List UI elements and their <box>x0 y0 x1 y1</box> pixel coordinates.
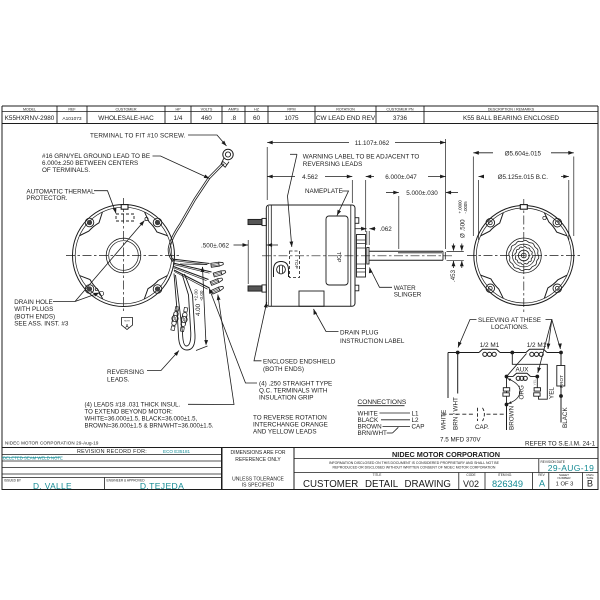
svg-text:WITH PLUGS: WITH PLUGS <box>14 306 53 313</box>
svg-text:DRAIN HOLE: DRAIN HOLE <box>14 299 53 306</box>
svg-text:Ø5.125±.015 B.C.: Ø5.125±.015 B.C. <box>498 174 549 181</box>
svg-text:INSULATION GRIP: INSULATION GRIP <box>259 395 313 402</box>
svg-text:D. VALLE: D. VALLE <box>33 481 72 491</box>
svg-text:V02: V02 <box>463 479 479 489</box>
svg-text:ECO E35181: ECO E35181 <box>163 449 191 454</box>
svg-text:MODEL: MODEL <box>23 107 36 111</box>
svg-text:INTERCHANGE ORANGE: INTERCHANGE ORANGE <box>253 422 328 429</box>
svg-text:-0.00: -0.00 <box>199 290 204 301</box>
svg-text:(4) LEADS #18 .031 THICK INSUL: (4) LEADS #18 .031 THICK INSUL. <box>85 402 181 409</box>
svg-text:(BOTH ENDS): (BOTH ENDS) <box>263 366 304 373</box>
svg-text:WHOLESALE-HAC: WHOLESALE-HAC <box>98 115 154 122</box>
svg-text:VOLTS: VOLTS <box>201 107 213 111</box>
svg-text:+2.00: +2.00 <box>194 289 199 301</box>
svg-text:LEADS.: LEADS. <box>107 377 130 384</box>
svg-text:7.5 MFD 370V: 7.5 MFD 370V <box>440 437 481 444</box>
svg-text:A101073: A101073 <box>62 116 82 122</box>
svg-text:CUSTOMER: CUSTOMER <box>115 107 136 111</box>
svg-text:TOP: TOP <box>335 252 341 263</box>
svg-text:CAP: CAP <box>412 424 425 431</box>
svg-text:NAMEPLATE: NAMEPLATE <box>305 188 343 195</box>
svg-text:4.562: 4.562 <box>302 174 318 181</box>
svg-text:REPRODUCED OR DISCLOSED WITHOU: REPRODUCED OR DISCLOSED WITHOUT WRITTEN … <box>333 465 496 469</box>
svg-text:NIDEC MOTOR CORPORATION: NIDEC MOTOR CORPORATION <box>392 450 500 459</box>
svg-text:WHITE: WHITE <box>441 410 448 430</box>
svg-text:NOTE: NOTE <box>124 321 130 323</box>
svg-text:Ø .500: Ø .500 <box>460 219 467 238</box>
svg-text:(4) .250 STRAIGHT TYPE: (4) .250 STRAIGHT TYPE <box>259 381 332 388</box>
svg-text:AMPS: AMPS <box>228 107 239 111</box>
svg-text:REF: REF <box>68 107 76 111</box>
svg-text:CW LEAD END REV: CW LEAD END REV <box>316 115 376 122</box>
svg-text:CUSTOMER DETAIL DRAWING: CUSTOMER DETAIL DRAWING <box>303 479 451 490</box>
svg-text:#16 GRN/YEL GROUND LEAD TO BE: #16 GRN/YEL GROUND LEAD TO BE <box>42 153 150 160</box>
svg-text:DRAIN PLUG: DRAIN PLUG <box>340 330 379 337</box>
svg-text:ITEM NO.: ITEM NO. <box>498 473 512 477</box>
svg-text:(BOTH ENDS): (BOTH ENDS) <box>14 313 55 320</box>
svg-text:WARNING LABEL TO BE ADJACENT T: WARNING LABEL TO BE ADJACENT TO <box>303 154 420 161</box>
svg-text:TO REVERSE ROTATION: TO REVERSE ROTATION <box>253 415 327 422</box>
svg-text:1/2 M1: 1/2 M1 <box>480 342 500 349</box>
svg-text:6.000±.250 BETWEEN CENTERS: 6.000±.250 BETWEEN CENTERS <box>42 160 138 167</box>
svg-text:REVERSING: REVERSING <box>107 369 144 376</box>
svg-text:K55 BALL BEARING ENCLOSED: K55 BALL BEARING ENCLOSED <box>463 115 559 122</box>
svg-text:ORG: ORG <box>519 385 526 399</box>
svg-text:4.00: 4.00 <box>195 303 202 316</box>
svg-text:IS SPECIFIED: IS SPECIFIED <box>242 482 275 488</box>
svg-text:1 OF 3: 1 OF 3 <box>556 482 574 488</box>
svg-text:CODE: CODE <box>466 473 475 477</box>
svg-text:.500±.062: .500±.062 <box>201 243 229 250</box>
svg-text:6.000±.047: 6.000±.047 <box>385 174 417 181</box>
svg-text:YEL: YEL <box>533 379 537 386</box>
svg-text:SLEEVING AT THESE: SLEEVING AT THESE <box>478 317 541 324</box>
svg-text:Ø5.604±.015: Ø5.604±.015 <box>505 150 542 157</box>
svg-text:1/2 M1: 1/2 M1 <box>527 342 547 349</box>
svg-text:Q.C. TERMINALS WITH: Q.C. TERMINALS WITH <box>259 388 328 395</box>
svg-text:.8: .8 <box>231 115 237 122</box>
svg-text:LOCATIONS.: LOCATIONS. <box>491 324 529 331</box>
svg-text:TOP: TOP <box>294 259 299 268</box>
svg-text:PROTECTOR.: PROTECTOR. <box>26 195 67 202</box>
svg-text:TO EXTEND BEYOND MOTOR:: TO EXTEND BEYOND MOTOR: <box>85 409 173 416</box>
svg-text:5.000±.030: 5.000±.030 <box>406 190 438 197</box>
svg-text:BLACK: BLACK <box>562 407 569 428</box>
svg-text:TITLE: TITLE <box>373 473 382 477</box>
svg-text:REFER TO S.E.I.M. 24-1: REFER TO S.E.I.M. 24-1 <box>525 441 596 448</box>
svg-text:YEL: YEL <box>548 387 555 399</box>
svg-text:-.0005: -.0005 <box>463 201 468 214</box>
svg-text:D.TEJEDA: D.TEJEDA <box>140 481 184 491</box>
svg-text:HP: HP <box>175 107 181 111</box>
svg-text:REFERENCE ONLY: REFERENCE ONLY <box>235 457 281 463</box>
svg-text:DIMENSIONS ARE FOR: DIMENSIONS ARE FOR <box>230 450 285 456</box>
svg-text:PROT: PROT <box>559 375 564 388</box>
svg-text:CAP.: CAP. <box>475 424 489 431</box>
svg-text:11.107±.062: 11.107±.062 <box>355 140 390 147</box>
svg-text:ENCLOSED ENDSHIELD: ENCLOSED ENDSHIELD <box>263 359 336 366</box>
svg-text:ISSUED BY: ISSUED BY <box>4 479 22 483</box>
svg-text:.062: .062 <box>380 226 393 233</box>
svg-text:REVERSING LEADS: REVERSING LEADS <box>303 161 363 168</box>
svg-text:REVISION RECORD FOR:: REVISION RECORD FOR: <box>77 449 147 455</box>
svg-text:DESCRIPTION / REMARKS: DESCRIPTION / REMARKS <box>488 107 535 111</box>
svg-text:SEE ASS. INST. #3: SEE ASS. INST. #3 <box>14 321 69 328</box>
svg-text:A: A <box>539 479 545 489</box>
svg-text:WHITE=36.000±1.5, BLACK=36.000: WHITE=36.000±1.5, BLACK=36.000±1.5, <box>85 416 198 423</box>
svg-text:TERMINAL TO FIT #10 SCREW.: TERMINAL TO FIT #10 SCREW. <box>90 133 186 140</box>
svg-text:826349: 826349 <box>492 479 523 489</box>
svg-text:29-AUG-19: 29-AUG-19 <box>548 463 595 473</box>
svg-text:1075: 1075 <box>284 115 299 122</box>
svg-text:K55HXRNV-2980: K55HXRNV-2980 <box>5 115 55 122</box>
svg-text:RPM: RPM <box>287 107 295 111</box>
svg-text:CONNECTIONS: CONNECTIONS <box>358 399 407 406</box>
svg-text:AUX: AUX <box>516 367 530 374</box>
svg-text:460: 460 <box>201 115 212 122</box>
svg-text:.453: .453 <box>450 269 457 282</box>
svg-text:1/4: 1/4 <box>174 115 183 122</box>
svg-text:INSTRUCTION LABEL: INSTRUCTION LABEL <box>340 338 405 345</box>
svg-text:SLINGER: SLINGER <box>394 292 422 299</box>
svg-text:BRN / WHT: BRN / WHT <box>453 397 460 430</box>
svg-text:NUMBER: NUMBER <box>557 476 571 480</box>
svg-text:HZ: HZ <box>254 107 260 111</box>
svg-text:OF TERMINALS.: OF TERMINALS. <box>42 167 90 174</box>
svg-text:BROWN=36.000±1.5 & BRN/WHT=36.: BROWN=36.000±1.5 & BRN/WHT=36.000±1.5. <box>85 423 214 430</box>
svg-text:CUSTOMER PN: CUSTOMER PN <box>386 107 414 111</box>
svg-text:60: 60 <box>253 115 261 122</box>
svg-text:NIDEC MOTOR CORPORATION 29-Aug: NIDEC MOTOR CORPORATION 29-Aug-19 <box>5 441 99 446</box>
svg-text:3736: 3736 <box>393 115 408 122</box>
svg-text:BRN/WHT: BRN/WHT <box>358 430 388 437</box>
svg-text:REV: REV <box>538 473 545 477</box>
svg-text:B: B <box>587 479 593 489</box>
svg-text:AND YELLOW LEADS: AND YELLOW LEADS <box>253 429 317 436</box>
svg-text:BROWN: BROWN <box>509 405 516 430</box>
svg-text:ROTATION: ROTATION <box>336 107 355 111</box>
